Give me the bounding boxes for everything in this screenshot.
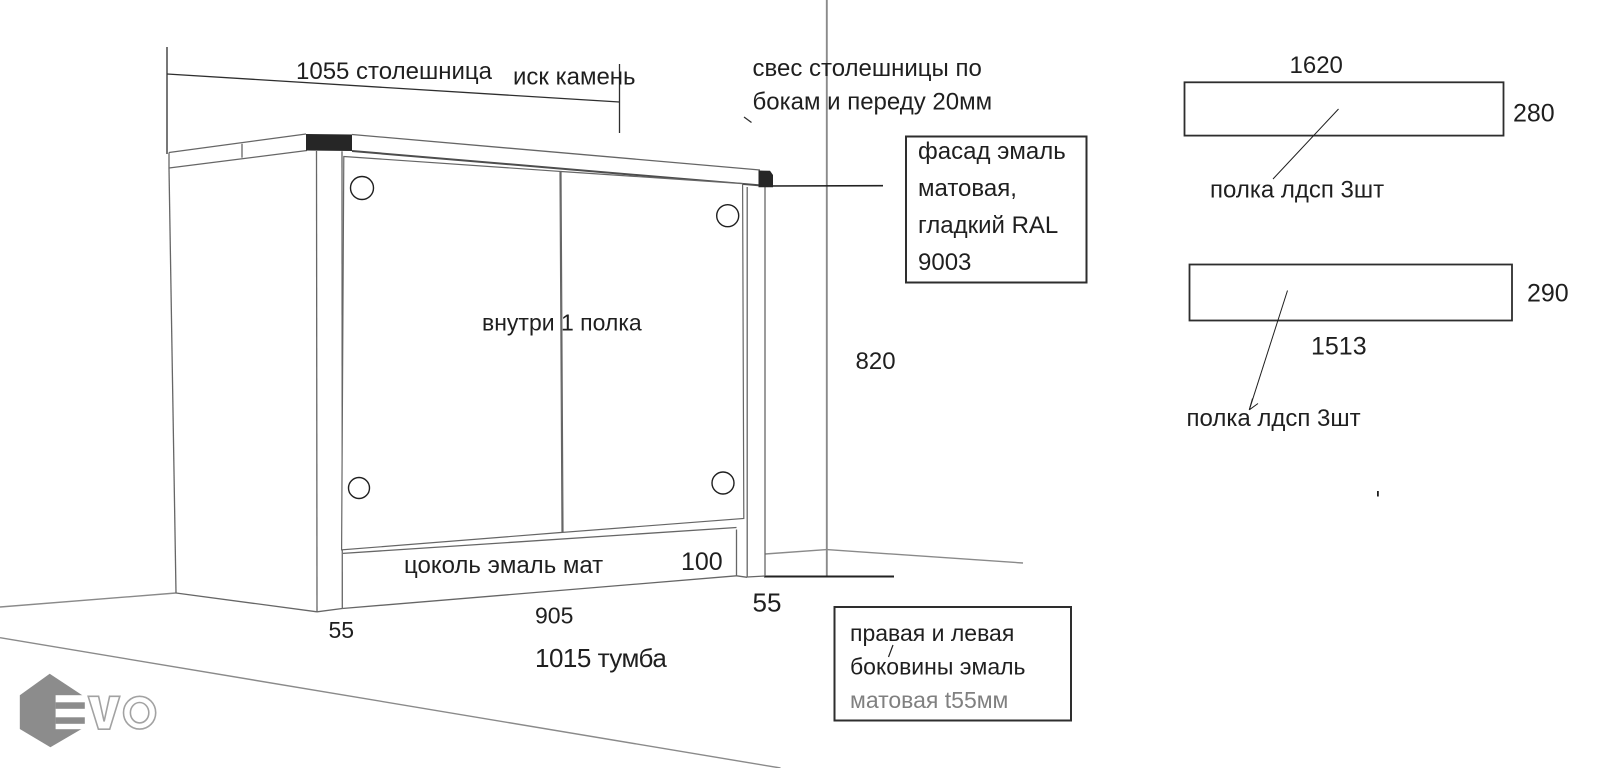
svg-text:1513: 1513 bbox=[1311, 333, 1367, 361]
svg-text:внутри 1 полка: внутри 1 полка bbox=[482, 310, 642, 336]
svg-text:280: 280 bbox=[1513, 100, 1555, 128]
svg-text:1620: 1620 bbox=[1290, 52, 1343, 79]
svg-text:55: 55 bbox=[329, 617, 355, 643]
svg-text:матовая,: матовая, bbox=[918, 175, 1017, 202]
svg-text:100: 100 bbox=[681, 548, 723, 576]
svg-text:бокам и переду 20мм: бокам и переду 20мм bbox=[753, 89, 993, 116]
svg-text:1015 тумба: 1015 тумба bbox=[535, 643, 667, 673]
svg-text:гладкий RAL: гладкий RAL bbox=[918, 212, 1058, 239]
svg-text:боковины эмаль: боковины эмаль bbox=[850, 654, 1026, 680]
svg-text:фасад эмаль: фасад эмаль bbox=[918, 138, 1066, 165]
svg-text:1055 столешница: 1055 столешница bbox=[296, 58, 493, 85]
svg-text:полка лдсп 3шт: полка лдсп 3шт bbox=[1187, 405, 1361, 432]
svg-text:свес столешницы по: свес столешницы по bbox=[753, 55, 982, 82]
svg-text:иск камень: иск камень bbox=[513, 64, 636, 91]
svg-text:полка лдсп 3шт: полка лдсп 3шт bbox=[1210, 177, 1384, 204]
svg-text:цоколь эмаль мат: цоколь эмаль мат bbox=[404, 552, 603, 579]
svg-text:55: 55 bbox=[753, 588, 782, 618]
svg-text:матовая t55мм: матовая t55мм bbox=[850, 687, 1008, 713]
svg-text:820: 820 bbox=[856, 348, 896, 375]
svg-text:905: 905 bbox=[535, 603, 573, 629]
svg-text:290: 290 bbox=[1527, 280, 1569, 308]
svg-text:9003: 9003 bbox=[918, 249, 971, 276]
svg-text:правая и левая: правая и левая bbox=[850, 620, 1014, 646]
